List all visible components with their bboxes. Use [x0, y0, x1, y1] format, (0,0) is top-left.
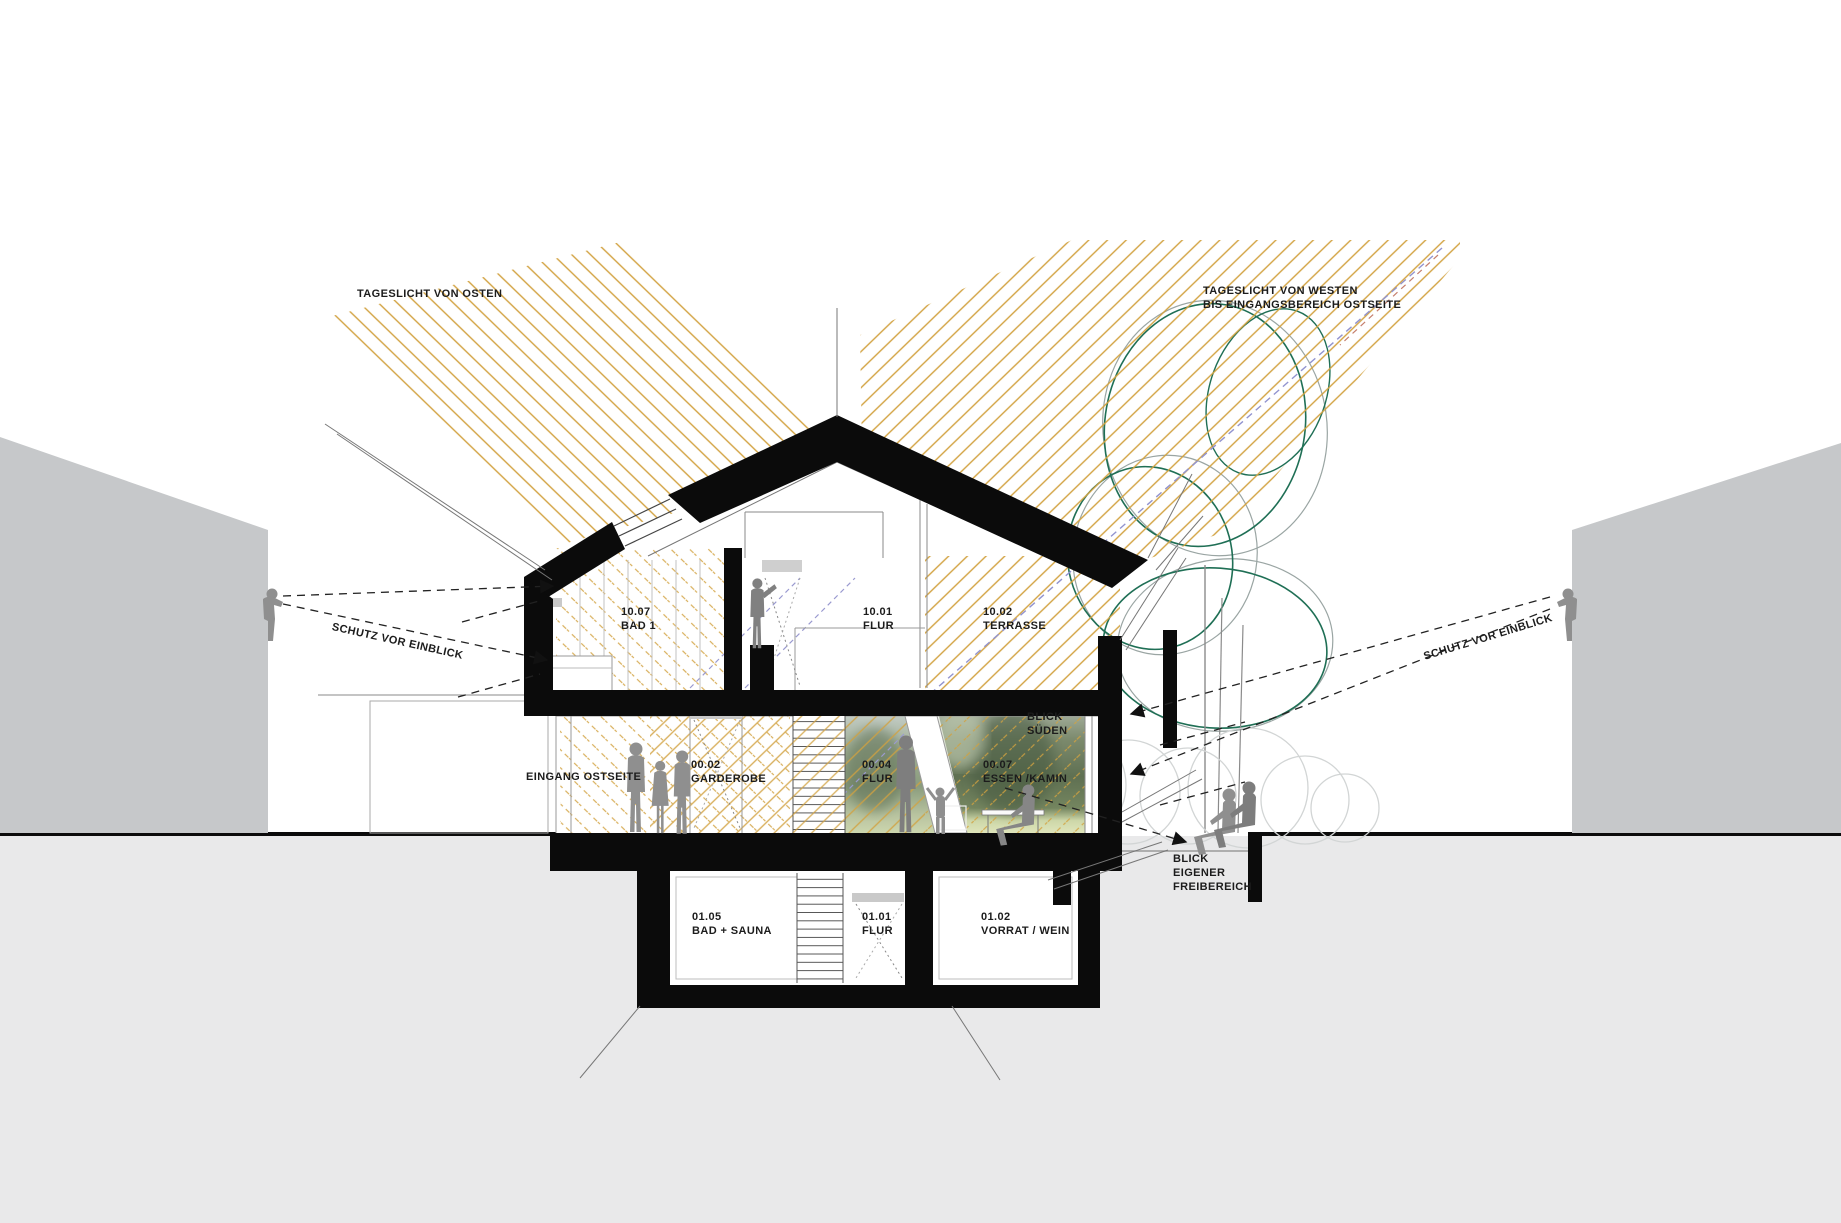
label-daylight-west: TAGESLICHT VON WESTEN BIS EINGANGSBEREIC…: [1203, 284, 1401, 312]
basement-wall-mid: [905, 871, 933, 985]
left-wall-attic: [524, 577, 553, 702]
right-wall-gf: [1098, 706, 1122, 851]
room-label-bad-sauna: 01.05 BAD + SAUNA: [692, 910, 772, 938]
pergola-post: [1163, 630, 1177, 748]
label-view-private: BLICK EIGENER FREIBEREICH: [1173, 852, 1252, 894]
neighbor-building-left: [0, 437, 268, 833]
entrance-porch: [370, 701, 548, 833]
label-view-south: BLICK SÜDEN: [1027, 710, 1068, 738]
room-label-essen: 00.07 ESSEN /KAMIN: [983, 758, 1067, 786]
room-label-bad1: 10.07 BAD 1: [621, 605, 656, 633]
ground-floor-slab: [550, 833, 1122, 871]
terrace-parapet: [1098, 636, 1122, 708]
stair-head: [750, 645, 774, 690]
privacy-arrow-right-upper: [1131, 597, 1550, 714]
attic-inner-wall: [724, 548, 742, 692]
section-drawing: [0, 0, 1841, 1223]
basement-floor-slab: [637, 985, 1100, 1008]
privacy-arrow-left-upper: [283, 586, 553, 596]
room-label-flur-ug: 01.01 FLUR: [862, 910, 893, 938]
room-label-garderobe: 00.02 GARDEROBE: [691, 758, 766, 786]
section-diagram: TAGESLICHT VON OSTEN TAGESLICHT VON WEST…: [0, 0, 1841, 1223]
room-label-flur-eg: 00.04 FLUR: [862, 758, 893, 786]
staircase-basement: [797, 873, 843, 983]
room-label-terrasse: 10.02 TERRASSE: [983, 605, 1046, 633]
neighbor-building-right: [1572, 443, 1841, 833]
room-label-vorrat: 01.02 VORRAT / WEIN: [981, 910, 1070, 938]
room-label-flur-og: 10.01 FLUR: [863, 605, 894, 633]
label-entrance: EINGANG OSTSEITE: [526, 770, 641, 784]
staircase-gf: [793, 716, 845, 833]
label-daylight-east: TAGESLICHT VON OSTEN: [357, 287, 502, 301]
